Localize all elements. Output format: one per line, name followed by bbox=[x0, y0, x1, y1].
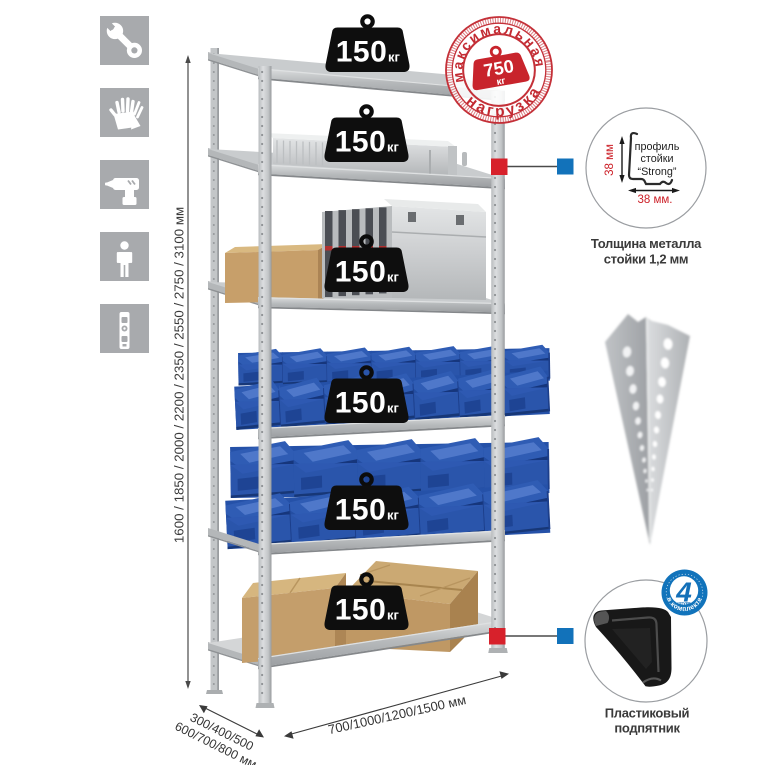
svg-text:штуки: штуки bbox=[677, 600, 691, 605]
svg-text:кг: кг bbox=[496, 76, 507, 88]
svg-text:1600 / 1850 / 2000 / 2200 / 23: 1600 / 1850 / 2000 / 2200 / 2350 / 2550 … bbox=[172, 207, 187, 543]
svg-text:38 мм: 38 мм bbox=[604, 144, 616, 176]
svg-text:подпятник: подпятник bbox=[614, 721, 680, 736]
svg-text:“Strong”: “Strong” bbox=[637, 166, 676, 178]
svg-text:профиль: профиль bbox=[635, 141, 680, 153]
svg-text:стойки: стойки bbox=[640, 153, 673, 165]
svg-text:700/1000/1200/1500 мм: 700/1000/1200/1500 мм bbox=[327, 692, 468, 737]
svg-text:стойки 1,2 мм: стойки 1,2 мм bbox=[604, 252, 689, 267]
svg-text:38 мм.: 38 мм. bbox=[638, 194, 673, 206]
svg-text:Пластиковый: Пластиковый bbox=[605, 706, 690, 721]
svg-text:Толщина металла: Толщина металла bbox=[591, 236, 702, 251]
